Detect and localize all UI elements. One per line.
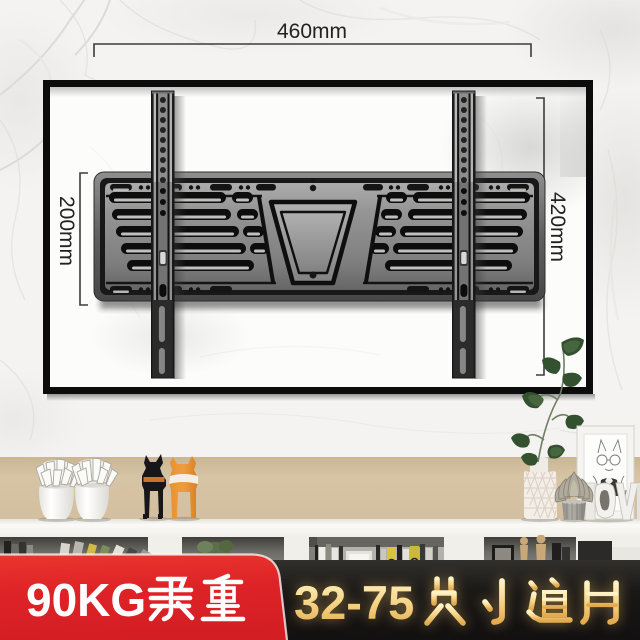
svg-text:90KG: 90KG <box>26 574 146 626</box>
svg-text:32-75: 32-75 <box>294 576 414 629</box>
